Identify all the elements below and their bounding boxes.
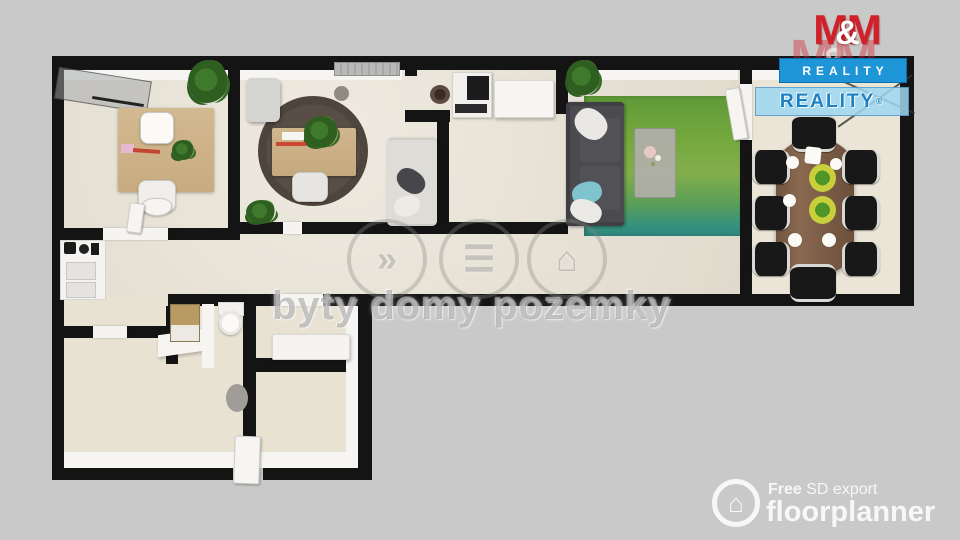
- meeting-chair-left-1: [752, 150, 790, 184]
- meeting-chair-right-3: [842, 242, 880, 276]
- wing-bottom-wallface: [64, 452, 358, 468]
- plate-3: [788, 233, 802, 247]
- floorplan-render: » ☰ ⌂ byty domy pozemky M&M REALITY® M&M…: [0, 0, 960, 540]
- floor-mat: [226, 384, 248, 412]
- office1-desk-plant: [172, 140, 194, 160]
- mm-logo-ampersand: &: [835, 14, 855, 52]
- coffee-machine-base: [455, 104, 487, 113]
- wall-office1-south-b: [168, 228, 240, 240]
- salad-bowl-2: [809, 196, 836, 224]
- sideboard-appliance-2: [79, 244, 89, 254]
- mm-reality-logo: M&M: [781, 10, 909, 53]
- plate-1: [786, 156, 799, 169]
- wall-hall-partition-a: [52, 326, 93, 338]
- mm-watermark-banner: REALITY®: [755, 87, 909, 116]
- office2-cabinet: [246, 78, 280, 122]
- wall-nook-east: [437, 110, 449, 234]
- wall-wing-bottom-a: [52, 466, 233, 480]
- meeting-chair-right-2: [842, 196, 880, 230]
- sound-waves-icon: »: [377, 238, 397, 280]
- doorway-office2: [283, 222, 302, 234]
- napkin-square: [804, 146, 822, 165]
- meeting-chair-right-1: [842, 150, 880, 184]
- bath-counter: [272, 334, 350, 360]
- home-marker-icon: ⌂: [556, 238, 578, 280]
- sideboard-appliance-1: [64, 242, 76, 254]
- wall-office1-south-a: [52, 228, 103, 240]
- office2-desk-papers: [282, 132, 304, 140]
- house-list-icon: ☰: [463, 238, 495, 280]
- wall-wing-bottom-b: [263, 466, 372, 480]
- lounge-table-flowers: [644, 146, 656, 158]
- meeting-chair-left-3: [752, 242, 790, 276]
- coffee-machine-top: [467, 76, 489, 100]
- doorway-hall: [93, 326, 127, 338]
- office1-corner-plant: [188, 60, 228, 104]
- house-glyph: ⌂: [728, 488, 744, 519]
- sideboard-appliance-3: [91, 243, 99, 255]
- office2-desk-plant: [304, 116, 338, 148]
- wall-meeting-west-b: [740, 140, 752, 306]
- mm-watermark-banner-text: REALITY: [780, 91, 875, 113]
- kitchenette-pot: [430, 85, 450, 104]
- office2-pot: [334, 86, 349, 101]
- wall-meeting-west-a: [740, 56, 752, 84]
- office1-chair-bottom-back: [142, 198, 172, 216]
- office2-desk-red-items: [276, 142, 306, 146]
- floorplanner-brand: floorplanner: [766, 496, 935, 529]
- entry-door-leaf: [233, 436, 261, 485]
- wall-office2-top-stub: [405, 56, 417, 76]
- mm-logo-banner: REALITY: [779, 58, 907, 83]
- plate-4: [822, 233, 836, 247]
- floorplanner-house-icon: ⌂: [712, 479, 760, 527]
- office2-floor-plant: [246, 200, 276, 224]
- office1-chair-top: [140, 112, 174, 144]
- wc-white-wallface: [202, 304, 214, 368]
- registered-mark: ®: [876, 97, 884, 106]
- office2-radiator: [334, 62, 400, 76]
- plate-5: [830, 158, 842, 170]
- sideboard-drawer-2: [66, 282, 96, 298]
- sideboard-drawer-1: [66, 262, 96, 280]
- plate-2: [783, 194, 796, 207]
- lounge-coffee-table: [634, 128, 676, 198]
- meeting-chair-bottom: [790, 264, 836, 302]
- lounge-plant: [566, 60, 600, 96]
- wc-tall-cabinet: [170, 304, 200, 342]
- office2-chair: [292, 172, 328, 202]
- watermark-text: byty domy pozemky: [272, 284, 671, 329]
- copier-box: [494, 80, 554, 118]
- wall-office-divider: [228, 56, 240, 240]
- toilet-bowl: [219, 311, 242, 335]
- mm-logo-banner-text: REALITY: [797, 64, 888, 78]
- wall-wing-east: [358, 306, 372, 480]
